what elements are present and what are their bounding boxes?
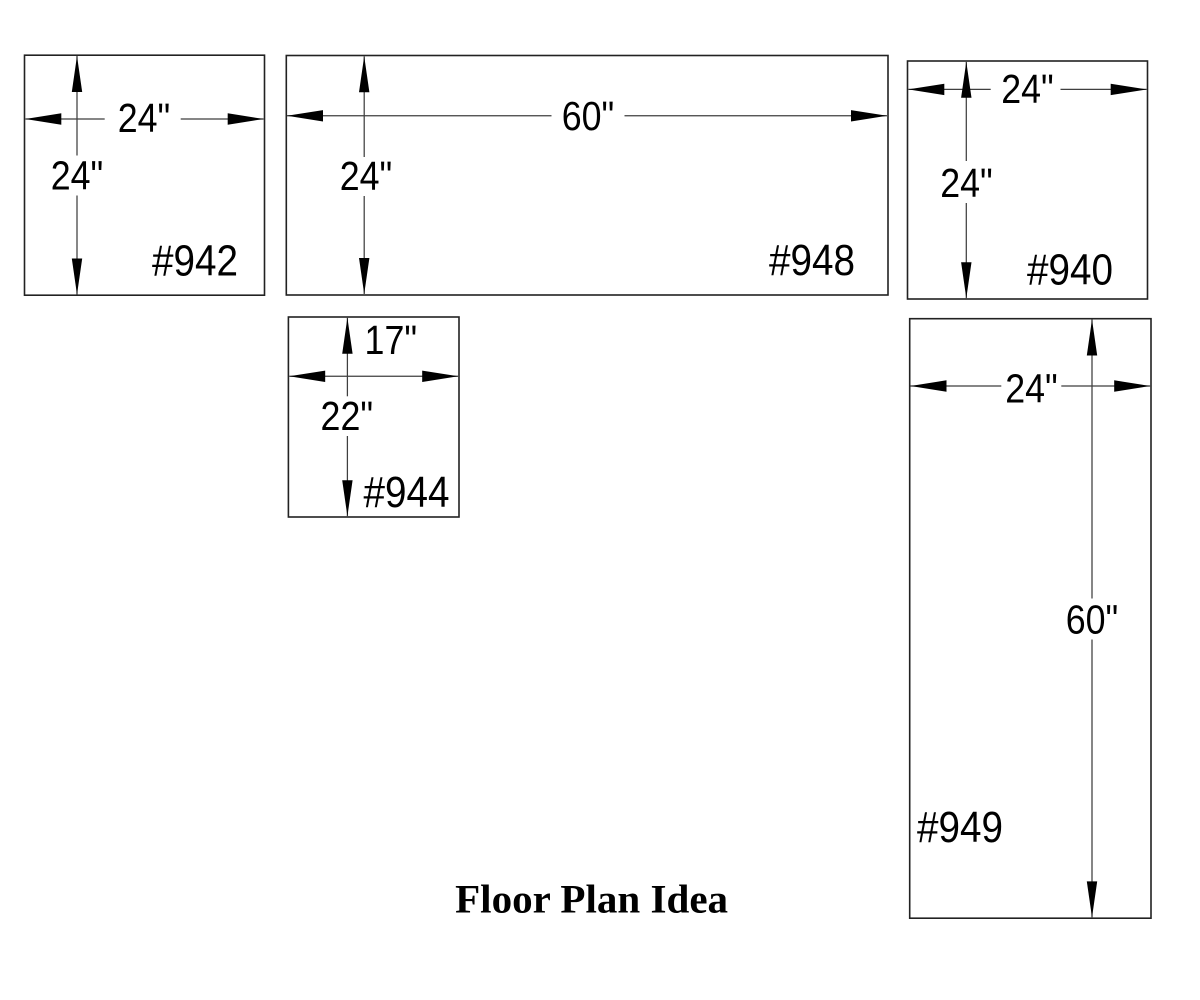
svg-text:24": 24" [51, 153, 104, 199]
svg-text:24": 24" [1001, 66, 1054, 112]
svg-text:#944: #944 [364, 468, 450, 517]
svg-text:#942: #942 [152, 236, 238, 285]
svg-text:17": 17" [365, 317, 418, 363]
svg-text:#940: #940 [1027, 246, 1113, 295]
svg-text:24": 24" [1005, 366, 1058, 412]
svg-text:#949: #949 [917, 803, 1003, 852]
svg-text:24": 24" [940, 160, 993, 206]
svg-text:#948: #948 [769, 236, 855, 285]
svg-text:22": 22" [321, 393, 374, 439]
svg-text:60": 60" [562, 93, 615, 139]
svg-text:60": 60" [1066, 597, 1119, 643]
svg-text:24": 24" [340, 153, 393, 199]
svg-text:24": 24" [118, 95, 171, 141]
svg-text:Floor Plan Idea: Floor Plan Idea [455, 877, 728, 922]
